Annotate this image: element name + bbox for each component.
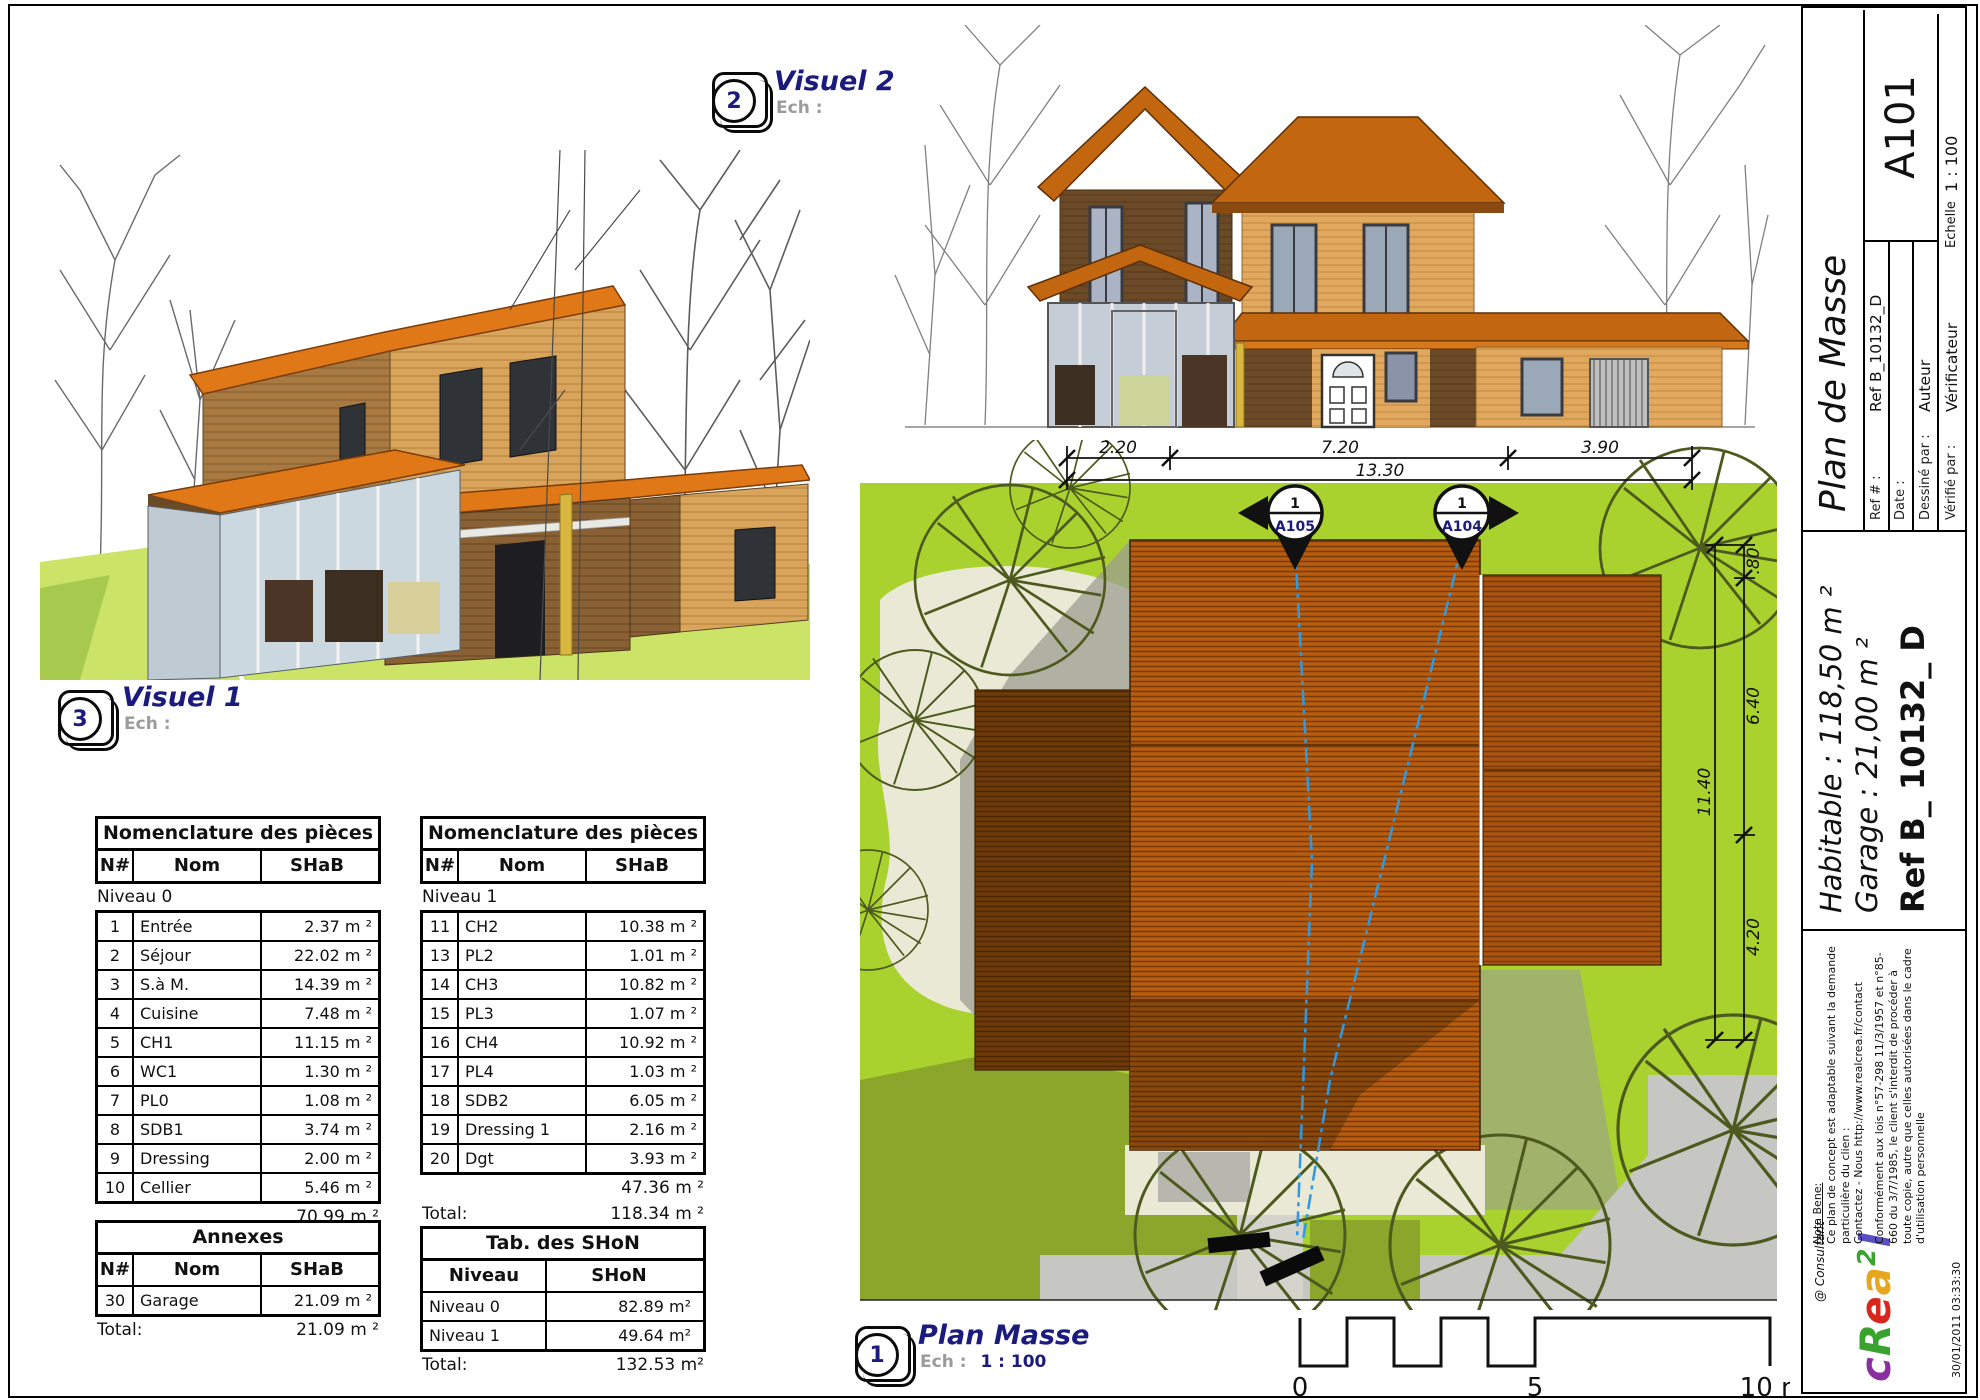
nota-body: Ce plan de concept est adaptable suivant… xyxy=(1825,946,1852,1244)
col-header: Nom xyxy=(134,851,262,881)
legal-notice: Conformément aux lois n°57-298 11/3/1957… xyxy=(1873,938,1928,1244)
table-row: 8SDB13.74 m ² xyxy=(98,1114,378,1143)
col-header: N# xyxy=(98,1255,134,1285)
drawing-title: Plan de Masse xyxy=(1803,10,1865,530)
table-title: Nomenclature des pièces xyxy=(98,819,378,851)
table-total: Total: 21.09 m ² xyxy=(95,1317,381,1343)
ech-value: 1 : 100 xyxy=(980,1352,1046,1372)
sunroom-glass-side xyxy=(148,506,220,680)
drawn-by-row: Dessiné par : Auteur xyxy=(1914,242,1939,530)
visuel-2-elevation-drawing xyxy=(890,25,1770,455)
wall-dark xyxy=(1242,349,1312,427)
marker-ref: A104 xyxy=(1442,519,1482,535)
col-header: N# xyxy=(423,851,459,881)
table-row: 4Cuisine7.48 m ² xyxy=(98,998,378,1027)
nota-contact: Contactez - Nous http://www.realcrea.fr/… xyxy=(1852,982,1865,1244)
garage-door xyxy=(1590,359,1648,427)
table-shon: Tab. des SHoN Niveau SHoN Niveau 082.89 … xyxy=(420,1226,706,1378)
col-header: Nom xyxy=(134,1255,262,1285)
table-title: Tab. des SHoN xyxy=(423,1229,703,1261)
dim-value: .80 xyxy=(1744,547,1764,574)
porch-void xyxy=(495,540,545,658)
table-title: Annexes xyxy=(98,1223,378,1255)
col-header: Nom xyxy=(459,851,587,881)
viewport-badge-icon: 3 xyxy=(58,690,114,746)
ech-label: Ech : xyxy=(920,1352,967,1372)
table-header-row: N# Nom SHaB xyxy=(98,851,378,881)
scale-value: 5 xyxy=(1527,1373,1544,1400)
interior-shape xyxy=(1055,365,1095,425)
table-total: Total: 132.53 m² xyxy=(420,1352,706,1378)
main-roof xyxy=(1212,117,1504,203)
table-row: 1Entrée2.37 m ² xyxy=(98,913,378,940)
table-row: 5CH111.15 m ² xyxy=(98,1027,378,1056)
table-row: 11CH210.38 m ² xyxy=(423,913,703,940)
table-header-row: Niveau SHoN xyxy=(423,1261,703,1291)
visuel-1-perspective-drawing xyxy=(40,150,810,680)
lawn-dark xyxy=(1310,1220,1420,1300)
front-door xyxy=(1322,355,1374,427)
visuel-1-scale: Ech : xyxy=(124,714,179,734)
table-row: 7PL01.08 m ² xyxy=(98,1085,378,1114)
table-row: Niveau 149.64 m² xyxy=(423,1320,703,1349)
patio xyxy=(1158,1152,1250,1202)
level-group-label: Niveau 0 xyxy=(95,884,381,910)
interior-shape xyxy=(1120,375,1170,425)
graphic-scale-bar: 0 5 10 m xyxy=(1290,1310,1790,1400)
table-row: 14CH310.82 m ² xyxy=(423,969,703,998)
habitable-area: Habitable : 118,50 m ² xyxy=(1813,532,1849,913)
viewport-number: 2 xyxy=(712,79,756,123)
scale-value: 0 xyxy=(1292,1373,1309,1400)
dim-value: 11.40 xyxy=(1695,768,1715,817)
table-nomenclature-niveau0: Nomenclature des pièces N# Nom SHaB Nive… xyxy=(95,816,381,1230)
roof-fascia xyxy=(1212,203,1504,213)
table-nomenclature-niveau1: Nomenclature des pièces N# Nom SHaB Nive… xyxy=(420,816,706,1227)
reference-big: Ref B_ 10132_ D xyxy=(1894,532,1932,913)
table-title: Nomenclature des pièces xyxy=(423,819,703,851)
timestamp: 30/01/2011 03:33:30 xyxy=(1950,1262,1963,1378)
scale-value: 1 : 100 xyxy=(1942,136,1961,192)
table-annexes: Annexes N# Nom SHaB 30Garage21.09 m ² To… xyxy=(95,1220,381,1343)
plan-masse-label: 1 xyxy=(855,1326,911,1382)
interior-shape xyxy=(1182,355,1227,427)
table-row: Niveau 082.89 m² xyxy=(423,1291,703,1320)
scale-label: Echelle xyxy=(1944,192,1959,262)
nota-bene: Nota Bene: Ce plan de concept est adapta… xyxy=(1811,938,1866,1244)
sheet-number: A101 xyxy=(1865,14,1939,242)
plan-masse-scale: Ech : 1 : 100 xyxy=(920,1352,1046,1372)
window xyxy=(1386,353,1416,401)
wall-dark xyxy=(1430,349,1476,427)
col-header: SHaB xyxy=(262,851,378,881)
architectural-sheet: 3 Visuel 1 Ech : xyxy=(0,0,1980,1400)
left-wing-roof xyxy=(975,690,1130,1070)
table-row: 18SDB26.05 m ² xyxy=(423,1085,703,1114)
viewport-badge-icon: 1 xyxy=(855,1326,911,1382)
table-row: 19Dressing 12.16 m ² xyxy=(423,1114,703,1143)
table-row: 17PL41.03 m ² xyxy=(423,1056,703,1085)
title-block-main: Plan de Masse Ref # : Ref B_10132_D Date… xyxy=(1803,10,1965,530)
col-header: SHaB xyxy=(587,851,703,881)
house-3d xyxy=(148,286,810,680)
table-row: 9Dressing2.00 m ² xyxy=(98,1143,378,1172)
dim-value: 7.20 xyxy=(1321,440,1359,458)
date-row: Date : xyxy=(1890,242,1915,530)
table-row: 16CH410.92 m ² xyxy=(423,1027,703,1056)
viewport-number: 1 xyxy=(855,1333,899,1377)
ech-label: Ech : xyxy=(124,714,171,734)
scale-value: 10 m xyxy=(1740,1373,1790,1400)
visuel-2-label: 2 xyxy=(712,72,768,128)
table-row: 6WC11.30 m ² xyxy=(98,1056,378,1085)
viewport-number: 3 xyxy=(58,697,102,741)
col-header: SHoN xyxy=(547,1261,697,1291)
window xyxy=(735,527,775,601)
visuel-2-title: Visuel 2 xyxy=(774,66,895,97)
table-row: 15PL31.07 m ² xyxy=(423,998,703,1027)
post xyxy=(1236,343,1244,427)
window xyxy=(1272,225,1316,321)
table-header-row: N# Nom SHaB xyxy=(423,851,703,881)
plan-masse-title: Plan Masse xyxy=(918,1320,1089,1351)
level-group-label: Niveau 1 xyxy=(420,884,706,910)
table-row: 3S.à M.14.39 m ² xyxy=(98,969,378,998)
site-plan-drawing: 1 A105 1 A104 2.20 7.20 3.90 13.30 xyxy=(860,440,1777,1310)
checked-by-row: Vérifié par : Vérificateur Echelle 1 : 1… xyxy=(1939,14,1965,530)
dim-value: 2.20 xyxy=(1099,440,1137,458)
table-row: 20Dgt3.93 m ² xyxy=(423,1143,703,1172)
table-row: 30Garage21.09 m ² xyxy=(98,1285,378,1314)
ref-row: Ref # : Ref B_10132_D xyxy=(1865,242,1890,530)
level-subtotal: 47.36 m ² xyxy=(420,1175,706,1201)
table-row: 10Cellier5.46 m ² xyxy=(98,1172,378,1201)
title-block-areas: Habitable : 118,50 m ² Garage : 21,00 m … xyxy=(1803,530,1965,929)
table-total: Total: 118.34 m ² xyxy=(420,1201,706,1227)
visuel-1-label: 3 xyxy=(58,690,114,746)
viewport-badge-icon: 2 xyxy=(712,72,768,128)
ech-label: Ech : xyxy=(776,98,823,118)
marker-ref: A105 xyxy=(1275,519,1315,535)
post xyxy=(560,494,572,655)
visuel-1-title: Visuel 1 xyxy=(122,682,243,713)
dim-value: 13.30 xyxy=(1356,461,1405,481)
left-gable-roof xyxy=(1038,87,1252,201)
garage-area: Garage : 21,00 m ² xyxy=(1849,532,1885,913)
dim-value: 4.20 xyxy=(1744,918,1764,956)
marker-number: 1 xyxy=(1457,496,1467,512)
dim-value: 3.90 xyxy=(1581,440,1619,458)
dim-value: 6.40 xyxy=(1744,687,1764,725)
title-block-notes: cRea2l @ Consultant 30/01/2011 03:33:30 … xyxy=(1803,929,1965,1392)
window xyxy=(1522,359,1562,415)
canopy-roof xyxy=(1220,313,1748,341)
window xyxy=(1364,225,1408,321)
house-elevation xyxy=(1028,87,1748,427)
col-header: SHaB xyxy=(262,1255,378,1285)
marker-number: 1 xyxy=(1290,496,1300,512)
table-row: 2Séjour22.02 m ² xyxy=(98,940,378,969)
visuel-2-scale: Ech : xyxy=(776,98,831,118)
col-header: N# xyxy=(98,851,134,881)
crea-logo: cRea2l xyxy=(1851,1232,1900,1382)
table-row: 13PL21.01 m ² xyxy=(423,940,703,969)
table-header-row: N# Nom SHaB xyxy=(98,1255,378,1285)
col-header: Niveau xyxy=(423,1261,547,1291)
window xyxy=(440,368,482,467)
title-block-strip: cRea2l @ Consultant 30/01/2011 03:33:30 … xyxy=(1801,6,1967,1394)
